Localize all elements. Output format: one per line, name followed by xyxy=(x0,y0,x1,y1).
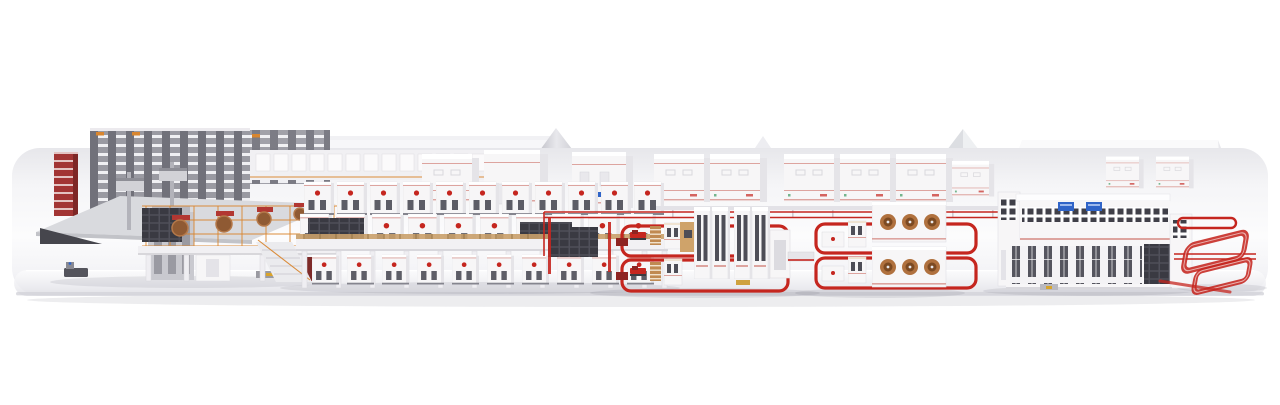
rack-orange-marker xyxy=(252,134,260,138)
island-machine xyxy=(664,223,682,249)
base-shadow-line xyxy=(1006,287,1172,289)
machine-housing-small xyxy=(1106,157,1144,189)
lower-hall-doors xyxy=(1010,246,1142,284)
pallet-stack xyxy=(616,238,628,246)
gantry-frame xyxy=(770,230,790,278)
corrugator-dark-panel-dryend xyxy=(548,227,598,257)
left-tower-windows xyxy=(1001,198,1017,220)
gallery-trim xyxy=(1020,238,1170,240)
reel-rack-red xyxy=(54,152,78,216)
pallet-rack xyxy=(650,226,661,245)
lower-hall-dark-section xyxy=(1144,244,1170,284)
display-screen xyxy=(1086,202,1102,211)
corrugated-board-plant-render xyxy=(0,0,1280,405)
mezzanine-deck xyxy=(296,239,668,249)
winder-machine xyxy=(872,202,946,242)
pallet-stack xyxy=(616,272,628,280)
machine-housing-small xyxy=(952,161,994,197)
red-pipe xyxy=(608,222,611,272)
machine-housing-small xyxy=(1156,157,1194,189)
display-screen xyxy=(1058,202,1074,211)
island-machine xyxy=(848,257,866,283)
machine-housing xyxy=(710,154,767,202)
red-pipe xyxy=(548,218,551,274)
cabinet-dot xyxy=(831,237,835,241)
cabinet-dot xyxy=(831,271,835,275)
display-screen-glare xyxy=(1088,204,1100,206)
mezzanine-deck-edge xyxy=(296,249,668,251)
splicer-deck-edge xyxy=(138,253,340,255)
rack-orange-marker xyxy=(96,132,104,136)
island-machine xyxy=(664,259,682,285)
splicer-upper-deck xyxy=(250,150,520,180)
display-screen-glare xyxy=(1060,204,1072,206)
rack-top-cap xyxy=(90,128,250,131)
winder-machine xyxy=(872,247,946,287)
rack-orange-marker xyxy=(132,132,140,136)
machine-housing xyxy=(784,154,841,202)
island-machine xyxy=(848,221,866,247)
wood-housing-window xyxy=(684,230,692,238)
transfer-car xyxy=(788,252,814,261)
under-deck-cabinet-door xyxy=(206,259,219,277)
plant-scene xyxy=(0,0,1280,405)
machine-housing xyxy=(840,154,897,202)
roof-band xyxy=(1016,194,1170,201)
corrugator-upper-modules xyxy=(304,182,664,215)
agv-status-light xyxy=(69,262,72,265)
pallet-rack xyxy=(650,262,661,281)
pallet xyxy=(736,280,750,285)
service-cart xyxy=(1040,284,1058,290)
machine-housing xyxy=(896,154,953,202)
logistics-machine xyxy=(998,192,1192,290)
